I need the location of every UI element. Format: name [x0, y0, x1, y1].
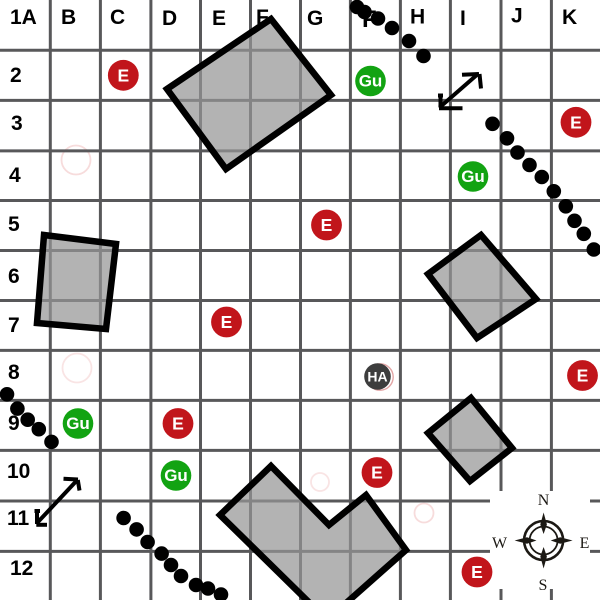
svg-text:J: J	[511, 5, 523, 28]
svg-text:K: K	[562, 6, 577, 29]
svg-text:3: 3	[11, 112, 23, 135]
svg-text:B: B	[61, 6, 76, 29]
svg-text:D: D	[162, 7, 177, 30]
svg-text:Gu: Gu	[66, 414, 90, 433]
svg-text:N: N	[538, 492, 550, 509]
svg-text:W: W	[492, 535, 508, 552]
svg-text:12: 12	[10, 557, 33, 580]
svg-text:E: E	[321, 215, 333, 235]
svg-text:S: S	[539, 577, 548, 594]
svg-text:E: E	[221, 312, 233, 332]
svg-text:E: E	[172, 414, 184, 434]
svg-text:C: C	[110, 6, 125, 29]
svg-text:Gu: Gu	[461, 167, 485, 186]
svg-text:E: E	[570, 113, 582, 133]
svg-text:H: H	[410, 6, 425, 29]
svg-text:5: 5	[8, 213, 20, 236]
svg-text:8: 8	[8, 361, 20, 384]
svg-text:E: E	[212, 7, 226, 30]
svg-text:E: E	[117, 66, 129, 86]
svg-text:Gu: Gu	[359, 72, 383, 91]
svg-text:2: 2	[10, 64, 22, 87]
svg-text:E: E	[371, 463, 383, 483]
svg-text:E: E	[471, 562, 483, 582]
svg-text:Gu: Gu	[164, 466, 188, 485]
svg-text:HA: HA	[367, 369, 387, 385]
svg-text:I: I	[460, 7, 466, 30]
svg-text:E: E	[577, 366, 589, 386]
svg-text:E: E	[580, 535, 590, 552]
svg-text:1A: 1A	[10, 6, 37, 29]
svg-text:G: G	[307, 7, 323, 30]
svg-text:6: 6	[8, 265, 20, 288]
svg-text:4: 4	[9, 164, 21, 187]
svg-text:10: 10	[7, 460, 30, 483]
svg-text:11: 11	[7, 507, 30, 530]
svg-text:7: 7	[8, 314, 20, 337]
